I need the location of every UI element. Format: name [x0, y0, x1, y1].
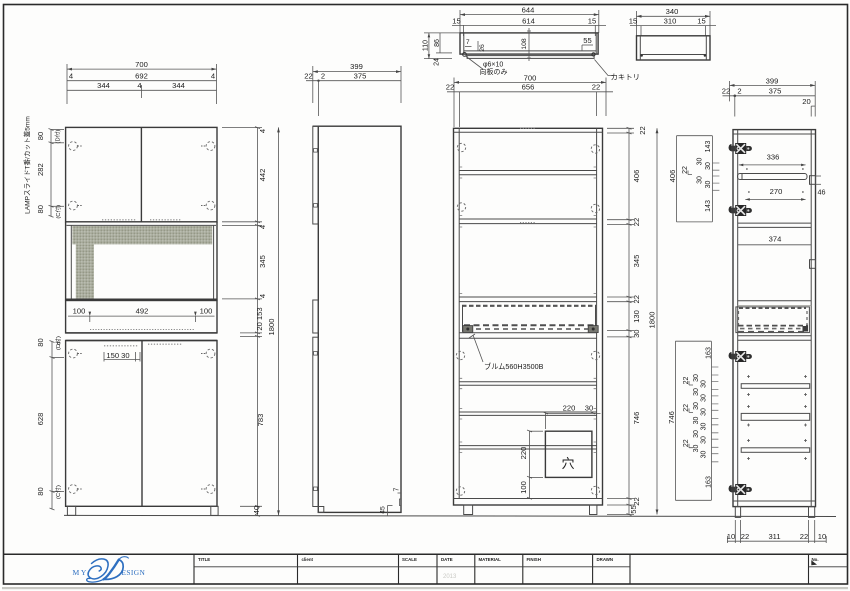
svg-text:375: 375: [354, 72, 367, 81]
svg-text:40: 40: [252, 506, 261, 514]
svg-text:1800: 1800: [267, 319, 276, 336]
svg-text:24: 24: [434, 58, 441, 66]
svg-text:4: 4: [69, 72, 73, 81]
svg-text:143: 143: [705, 200, 712, 212]
svg-text:656: 656: [522, 83, 535, 92]
svg-text:FINISH: FINISH: [527, 557, 541, 562]
svg-text:No.: No.: [812, 557, 819, 562]
svg-text:311: 311: [768, 532, 780, 541]
svg-text:100: 100: [519, 481, 528, 494]
svg-text:4: 4: [211, 72, 215, 81]
svg-text:(C付): (C付): [54, 485, 62, 499]
svg-text:2: 2: [737, 87, 741, 96]
svg-text:MATERIAL: MATERIAL: [479, 557, 502, 562]
svg-text:30: 30: [701, 451, 708, 459]
svg-text:26: 26: [479, 44, 486, 52]
svg-text:TITLE: TITLE: [198, 557, 210, 562]
svg-text:30: 30: [705, 181, 712, 189]
svg-text:220: 220: [519, 447, 528, 460]
svg-text:374: 374: [769, 235, 782, 244]
svg-text:30: 30: [693, 388, 700, 396]
svg-text:15: 15: [629, 17, 637, 26]
svg-text:30: 30: [693, 445, 700, 453]
svg-text:80: 80: [36, 338, 45, 346]
svg-text:442: 442: [258, 169, 267, 182]
svg-text:345: 345: [632, 255, 641, 268]
svg-text:340: 340: [666, 7, 679, 16]
svg-text:カキトリ: カキトリ: [611, 73, 641, 82]
svg-text:30: 30: [693, 417, 700, 425]
svg-text:30: 30: [701, 408, 708, 416]
svg-text:20 153: 20 153: [255, 307, 264, 330]
svg-text:7: 7: [394, 487, 401, 491]
svg-text:344: 344: [172, 81, 185, 90]
svg-text:399: 399: [350, 62, 363, 71]
svg-text:15: 15: [588, 16, 596, 25]
svg-text:22: 22: [722, 87, 730, 96]
svg-text:LAMPスライドT番/カット蓋5mm: LAMPスライドT番/カット蓋5mm: [23, 116, 32, 214]
svg-text:22: 22: [446, 83, 454, 92]
svg-text:344: 344: [97, 81, 110, 90]
svg-text:108: 108: [521, 38, 528, 50]
svg-text:692: 692: [135, 72, 148, 81]
svg-text:80: 80: [36, 205, 45, 213]
svg-text:ESIGN: ESIGN: [122, 568, 146, 577]
svg-text:22: 22: [592, 83, 600, 92]
svg-text:10: 10: [818, 532, 826, 541]
svg-text:310: 310: [664, 17, 677, 26]
svg-text:15: 15: [697, 17, 705, 26]
svg-text:30: 30: [701, 380, 708, 388]
svg-text:2: 2: [321, 72, 325, 81]
svg-text:4: 4: [258, 294, 267, 298]
svg-text:15: 15: [452, 16, 460, 25]
svg-text:345: 345: [258, 255, 267, 268]
svg-text:4: 4: [137, 81, 141, 90]
svg-text:30: 30: [585, 404, 593, 413]
svg-text:向板のみ: 向板のみ: [480, 67, 508, 76]
svg-text:22: 22: [304, 72, 312, 81]
svg-text:80: 80: [36, 487, 45, 495]
svg-text:86: 86: [434, 39, 441, 47]
svg-text:399: 399: [766, 76, 779, 85]
svg-text:375: 375: [769, 87, 782, 96]
svg-text:644: 644: [522, 6, 535, 15]
svg-text:22: 22: [741, 532, 749, 541]
svg-text:614: 614: [522, 16, 535, 25]
svg-text:163: 163: [706, 347, 713, 359]
svg-text:22: 22: [632, 218, 641, 226]
svg-text:穴: 穴: [561, 456, 574, 471]
svg-text:700: 700: [524, 73, 537, 82]
svg-text:628: 628: [36, 413, 45, 426]
svg-text:30: 30: [705, 162, 712, 170]
svg-text:270: 270: [770, 187, 783, 196]
svg-text:746: 746: [632, 412, 641, 425]
svg-text:55: 55: [629, 505, 638, 513]
svg-text:10: 10: [727, 532, 735, 541]
svg-text:282: 282: [36, 163, 45, 176]
svg-text:100: 100: [200, 306, 213, 315]
svg-text:30: 30: [701, 436, 708, 444]
svg-text:DRAWN: DRAWN: [597, 557, 614, 562]
svg-text:(C付): (C付): [54, 205, 62, 219]
svg-text:client: client: [302, 557, 314, 562]
svg-text:(D付): (D付): [54, 130, 62, 144]
svg-text:45: 45: [380, 506, 387, 514]
svg-text:30: 30: [693, 402, 700, 410]
svg-text:30: 30: [693, 374, 700, 382]
svg-text:336: 336: [767, 153, 780, 162]
svg-text:4: 4: [258, 129, 267, 133]
svg-text:406: 406: [632, 170, 641, 183]
svg-text:30: 30: [697, 176, 704, 184]
svg-text:1800: 1800: [648, 312, 657, 329]
svg-text:55: 55: [583, 36, 591, 45]
svg-text:SCALE: SCALE: [402, 557, 417, 562]
svg-text:DATE: DATE: [441, 557, 453, 562]
svg-text:746: 746: [667, 411, 676, 424]
svg-text:(D付): (D付): [54, 336, 62, 350]
svg-text:4: 4: [258, 225, 267, 229]
svg-text:163: 163: [706, 476, 713, 488]
svg-text:22: 22: [800, 532, 808, 541]
svg-text:150 30: 150 30: [106, 351, 129, 360]
svg-text:30: 30: [701, 423, 708, 431]
svg-text:7: 7: [466, 39, 470, 46]
svg-text:20: 20: [802, 97, 810, 106]
svg-text:46: 46: [818, 188, 826, 197]
svg-text:30: 30: [697, 158, 704, 166]
svg-text:100: 100: [73, 306, 86, 315]
svg-text:22: 22: [632, 497, 641, 505]
svg-text:ブルム560H3500B: ブルム560H3500B: [484, 362, 544, 371]
svg-text:220: 220: [563, 404, 576, 413]
svg-text:130: 130: [632, 310, 641, 323]
svg-text:406: 406: [668, 170, 677, 183]
svg-text:30: 30: [693, 430, 700, 438]
svg-text:22: 22: [638, 126, 647, 134]
svg-text:MY: MY: [73, 568, 88, 577]
svg-text:783: 783: [256, 414, 265, 427]
svg-text:143: 143: [705, 141, 712, 153]
svg-text:30: 30: [701, 394, 708, 402]
svg-text:110: 110: [423, 40, 430, 51]
svg-text:492: 492: [136, 306, 149, 315]
svg-text:700: 700: [135, 60, 148, 69]
svg-text:φ6×10: φ6×10: [483, 62, 503, 69]
svg-text:80: 80: [36, 132, 45, 140]
svg-text:2013: 2013: [443, 574, 457, 580]
svg-text:22: 22: [632, 295, 641, 303]
svg-text:30: 30: [632, 329, 641, 337]
